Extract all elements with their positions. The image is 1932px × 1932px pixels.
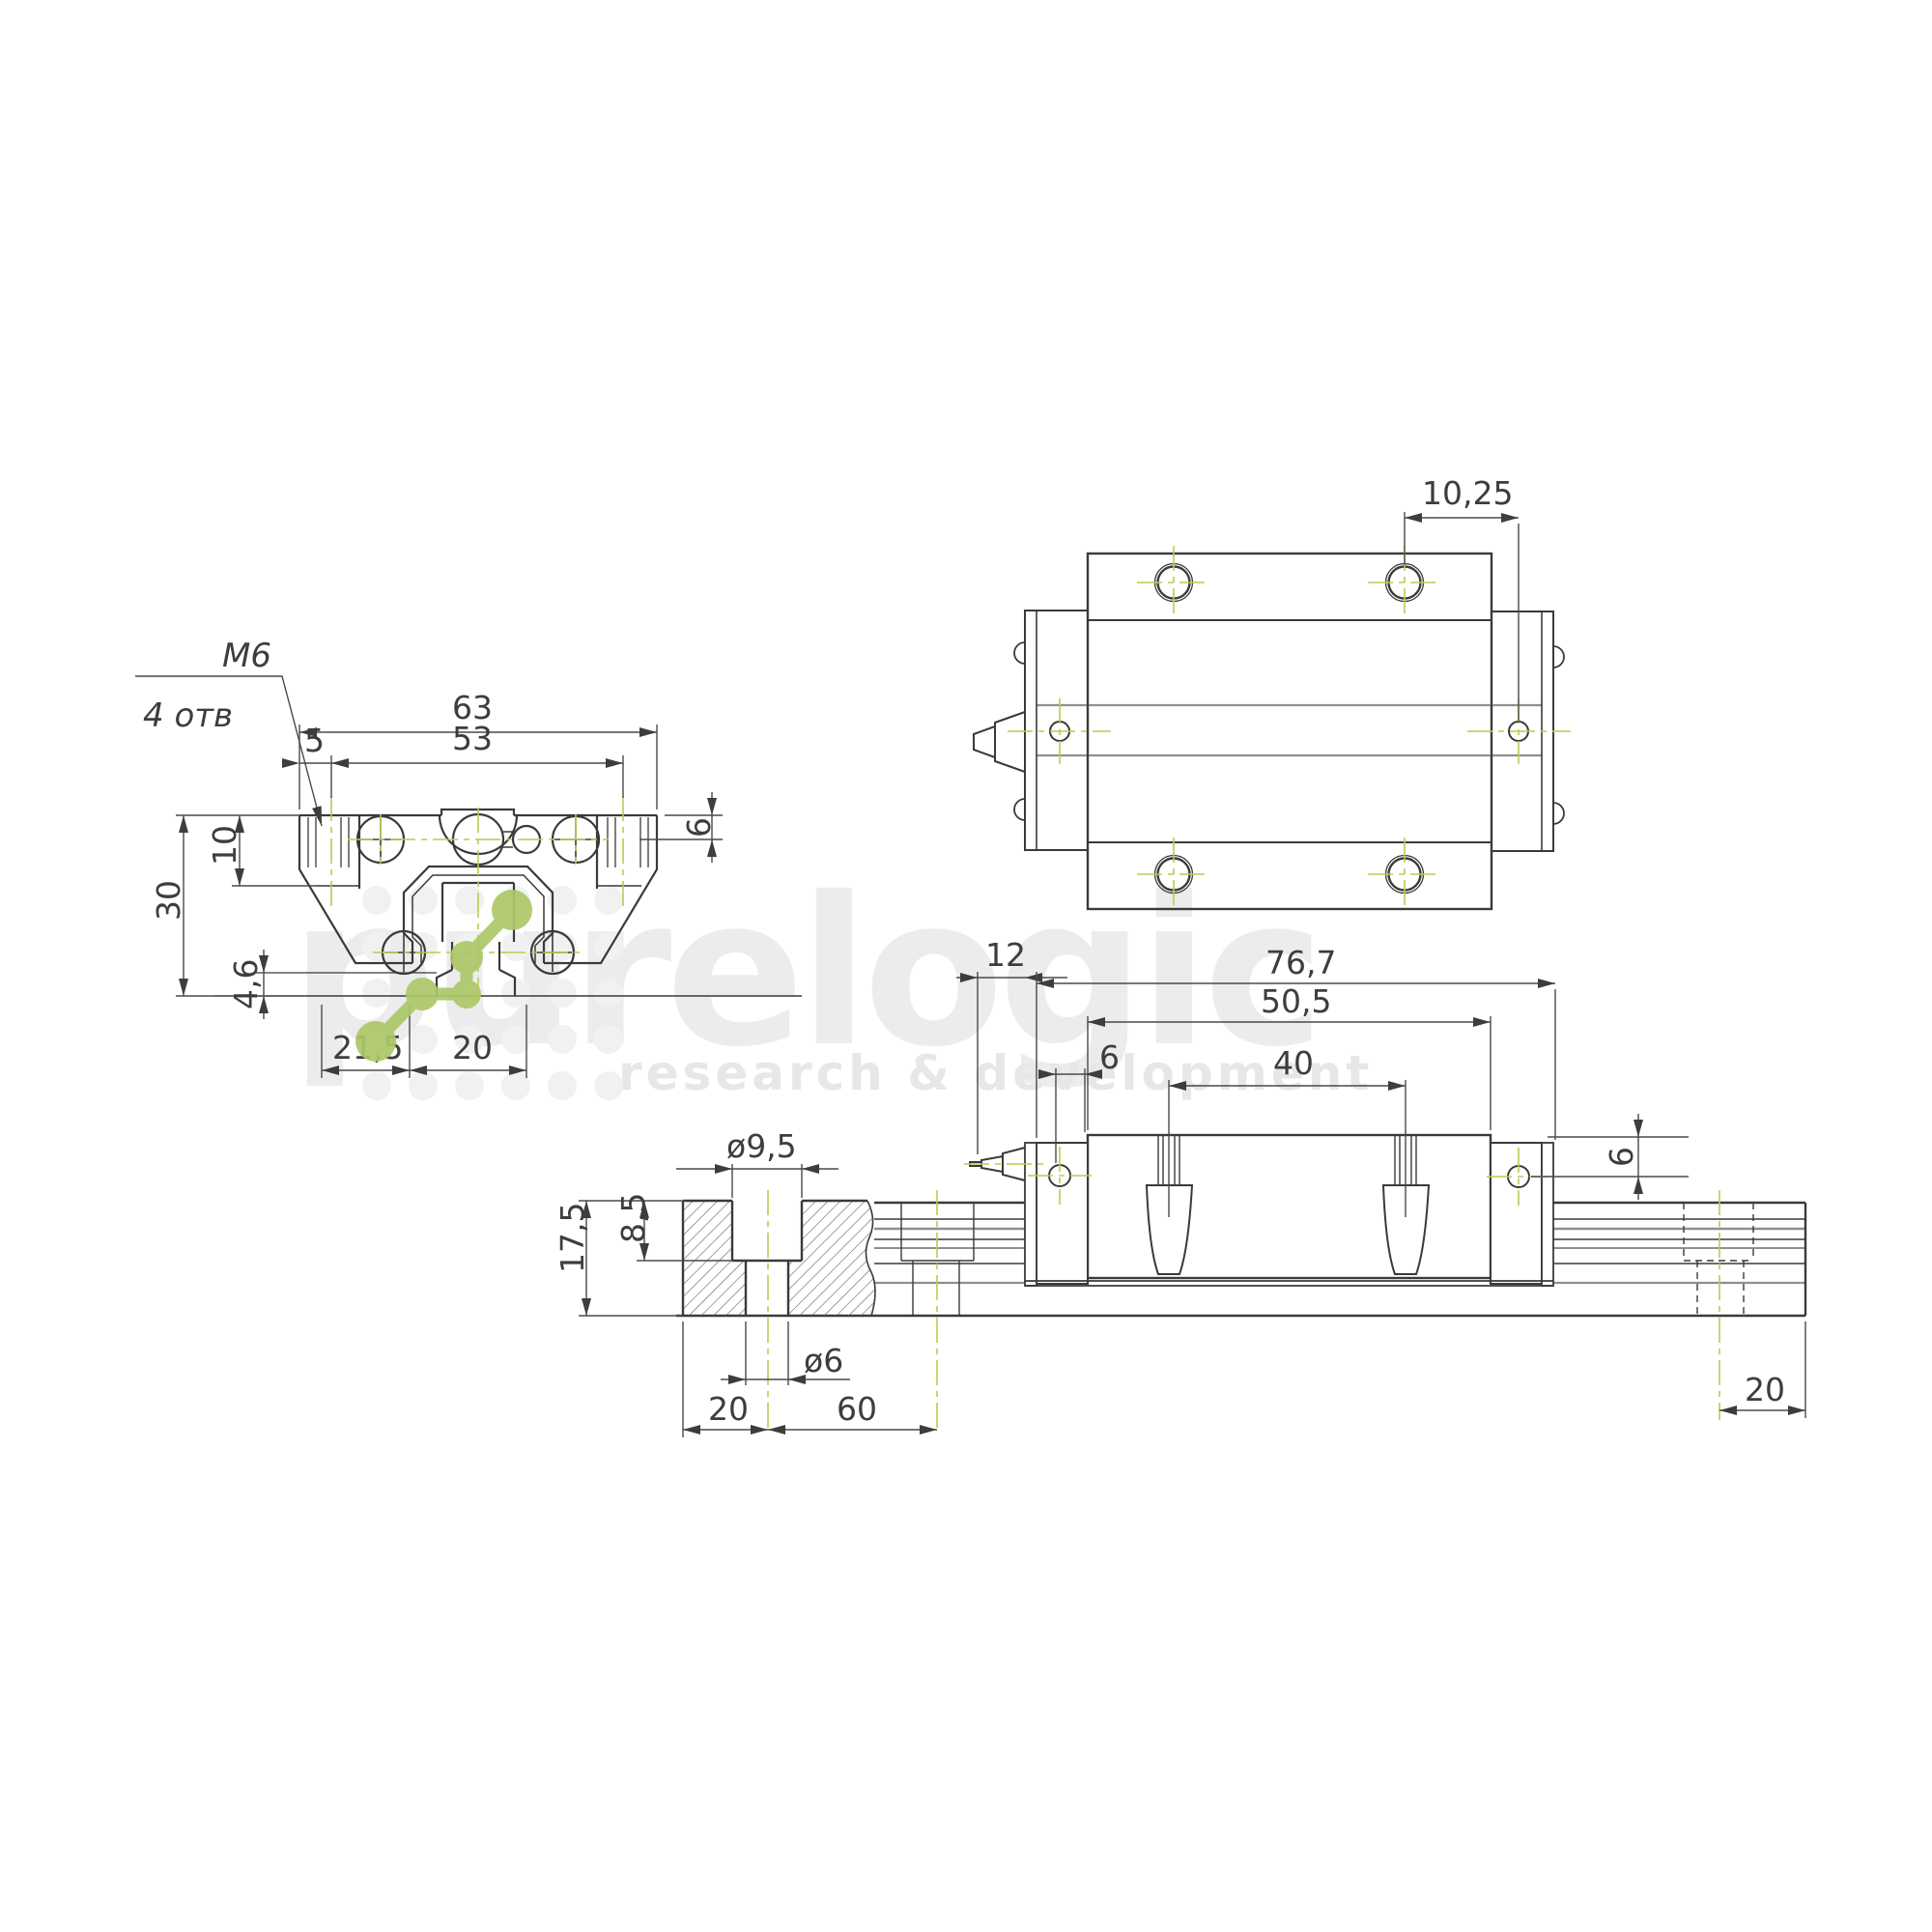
dim-top-hole-offset: 10,25 (1422, 474, 1513, 512)
dim-side-pin-spacing: 40 (1273, 1044, 1314, 1082)
dim-rail-height: 17,5 (554, 1203, 591, 1273)
dim-rail-hole-pitch: 60 (837, 1390, 877, 1428)
dim-rail-counterbore-depth: 8,5 (614, 1193, 652, 1243)
dim-side-body-length: 50,5 (1261, 982, 1331, 1020)
note-hole-count: 4 отв (143, 696, 233, 735)
top-view-dimensions (1405, 512, 1519, 723)
dim-side-hole-height: 6 (1603, 1147, 1640, 1167)
drawing-sheet: purelogic research & development (0, 0, 1932, 1932)
dim-front-edge-offset: 5 (304, 722, 325, 759)
note-thread: М6 (222, 637, 271, 675)
dim-rail-hole-dia: ø6 (804, 1342, 843, 1379)
watermark-tagline-text: research & development (618, 1045, 1373, 1101)
dim-front-flange-height: 10 (206, 825, 243, 866)
dim-side-cap-hole-offset: 6 (1099, 1038, 1120, 1076)
dim-front-hole-span: 53 (452, 720, 493, 757)
linear-guide-drawing: purelogic research & development (0, 0, 1932, 1932)
dim-rail-edge-to-hole: 20 (708, 1390, 749, 1428)
dim-front-rail-base: 4,6 (227, 959, 265, 1009)
dim-front-hole-depth: 6 (680, 817, 718, 838)
dim-side-nipple: 12 (985, 936, 1026, 974)
dim-front-rail-width: 20 (452, 1029, 493, 1066)
dim-rail-counterbore-dia: ø9,5 (726, 1127, 797, 1165)
rail-section (683, 1201, 875, 1316)
dim-side-total-length: 76,7 (1265, 944, 1336, 981)
dim-side-end-hole-offset: 20 (1745, 1371, 1785, 1408)
dim-front-height: 30 (150, 880, 187, 921)
